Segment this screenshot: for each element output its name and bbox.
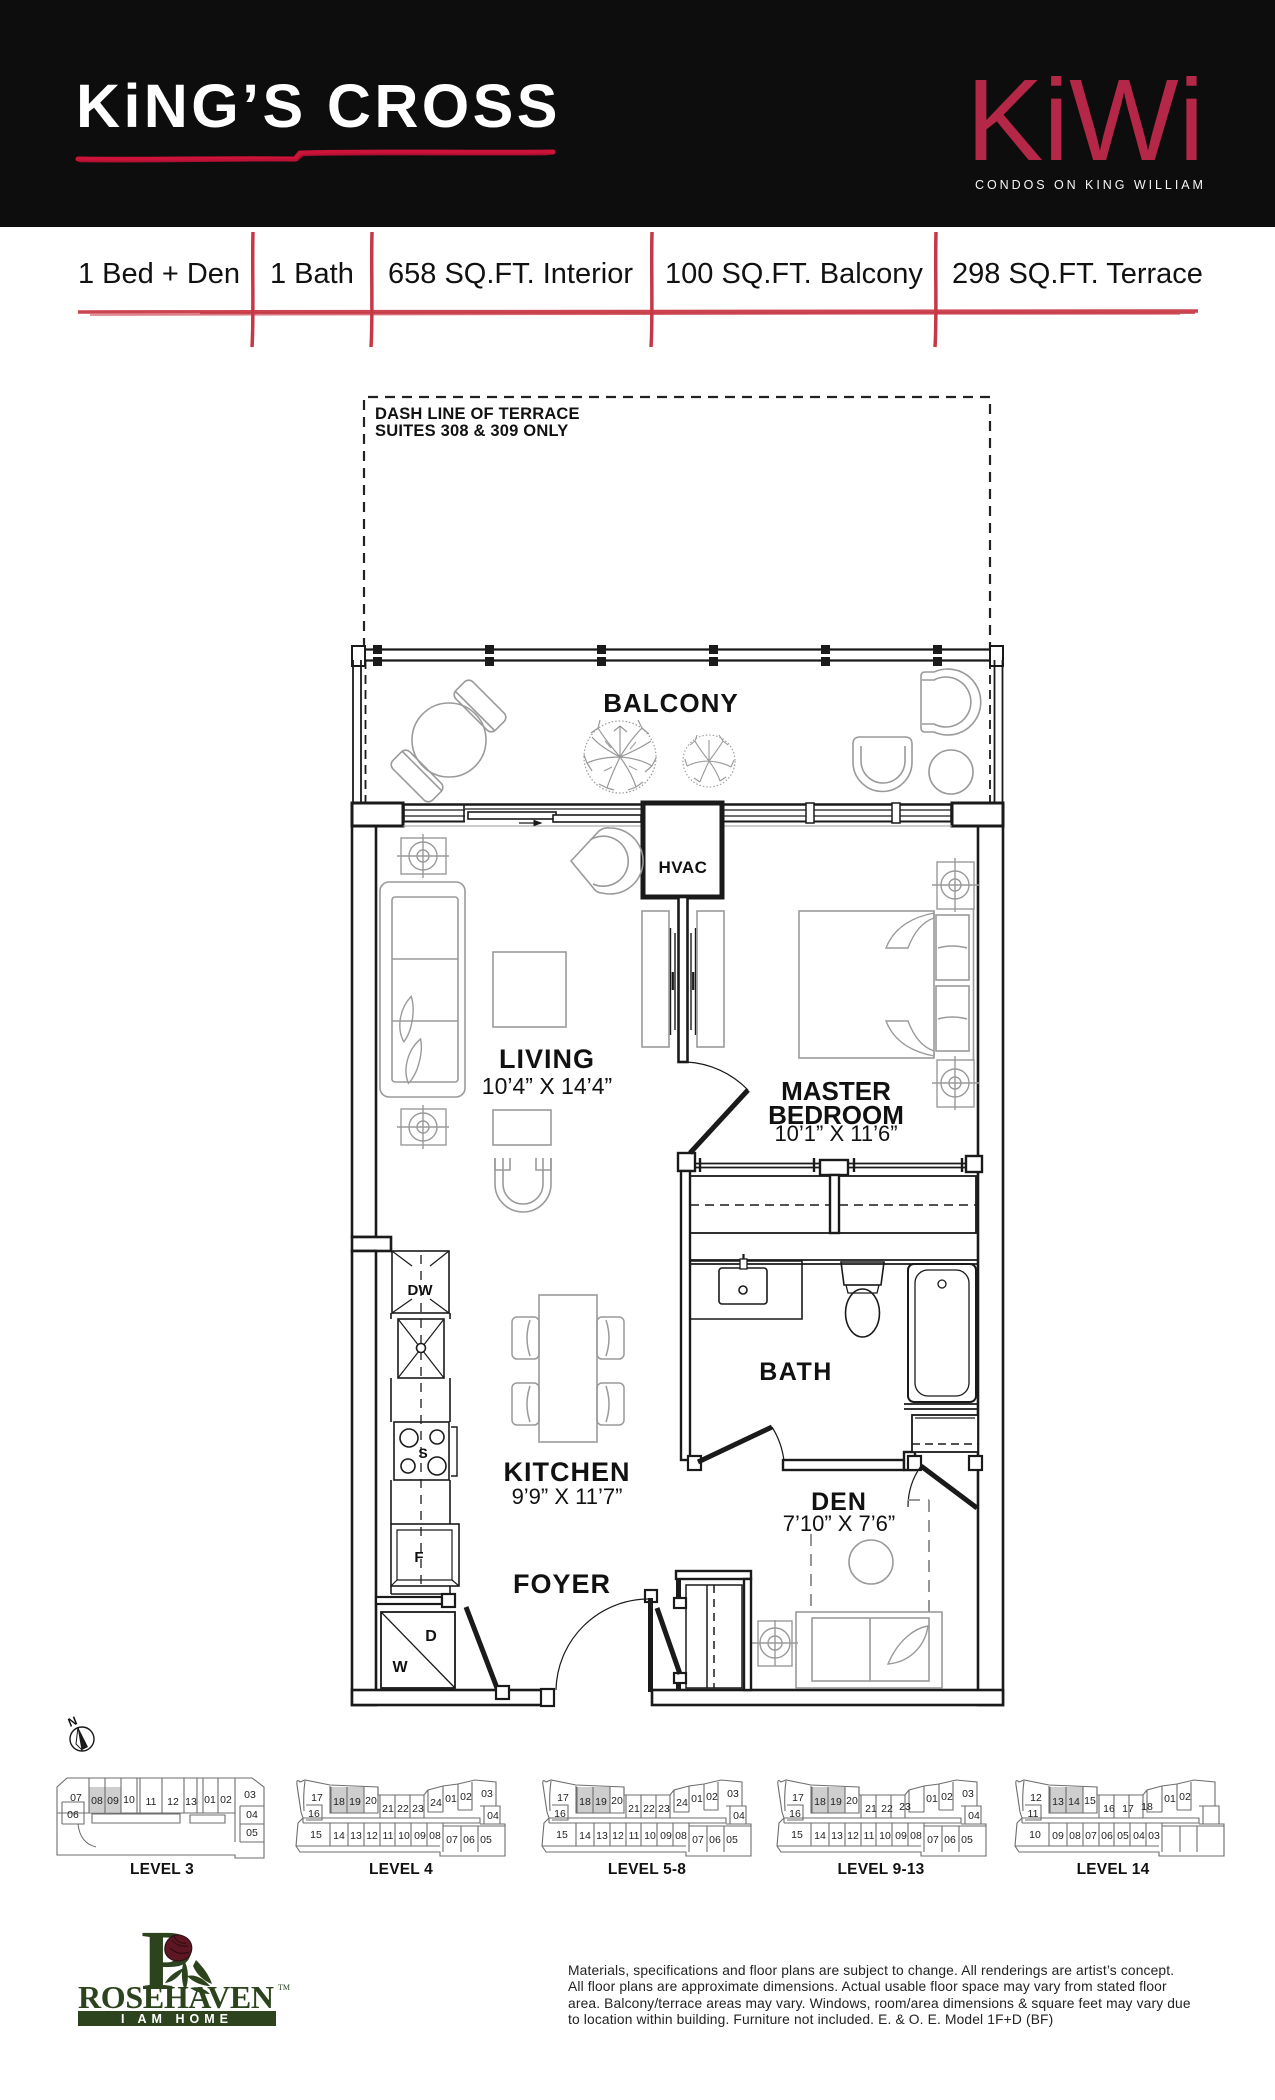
svg-text:I AM HOME: I AM HOME (121, 2012, 233, 2026)
svg-text:04: 04 (246, 1809, 258, 1821)
svg-text:14: 14 (579, 1830, 591, 1842)
svg-text:01: 01 (1164, 1793, 1176, 1805)
svg-text:KITCHEN: KITCHEN (504, 1457, 631, 1487)
svg-text:13: 13 (1052, 1796, 1064, 1808)
svg-text:W: W (392, 1659, 408, 1676)
svg-text:05: 05 (726, 1834, 738, 1846)
svg-text:7’10” X 7’6”: 7’10” X 7’6” (783, 1511, 896, 1536)
svg-text:22: 22 (643, 1803, 655, 1815)
svg-text:14: 14 (333, 1830, 345, 1842)
svg-text:16: 16 (308, 1808, 320, 1820)
svg-text:06: 06 (1101, 1830, 1113, 1842)
svg-text:05: 05 (961, 1834, 973, 1846)
svg-text:23: 23 (412, 1803, 424, 1815)
svg-text:BALCONY: BALCONY (603, 688, 739, 718)
svg-text:17: 17 (792, 1792, 804, 1804)
svg-text:13: 13 (831, 1830, 843, 1842)
svg-text:09: 09 (660, 1830, 672, 1842)
svg-text:17: 17 (557, 1792, 569, 1804)
svg-text:17: 17 (311, 1792, 323, 1804)
svg-text:LIVING: LIVING (499, 1044, 595, 1074)
svg-text:01: 01 (691, 1793, 703, 1805)
svg-text:19: 19 (830, 1796, 842, 1808)
svg-text:09: 09 (414, 1830, 426, 1842)
svg-text:BATH: BATH (759, 1358, 833, 1386)
svg-text:03: 03 (244, 1789, 256, 1801)
svg-text:09: 09 (895, 1830, 907, 1842)
svg-text:10: 10 (398, 1830, 410, 1842)
svg-text:21: 21 (628, 1803, 640, 1815)
svg-text:03: 03 (481, 1788, 493, 1800)
svg-text:10: 10 (879, 1830, 891, 1842)
svg-text:11: 11 (1028, 1808, 1039, 1820)
svg-text:04: 04 (487, 1810, 499, 1822)
svg-text:12: 12 (366, 1830, 378, 1842)
svg-text:06: 06 (944, 1834, 956, 1846)
svg-text:19: 19 (595, 1796, 607, 1808)
svg-text:21: 21 (865, 1803, 877, 1815)
svg-text:10: 10 (1029, 1829, 1041, 1841)
svg-text:12: 12 (847, 1830, 859, 1842)
svg-text:08: 08 (1069, 1830, 1081, 1842)
svg-text:03: 03 (727, 1788, 739, 1800)
svg-text:12: 12 (612, 1830, 624, 1842)
svg-text:22: 22 (397, 1803, 409, 1815)
svg-text:05: 05 (246, 1827, 258, 1839)
svg-text:09: 09 (1052, 1830, 1064, 1842)
svg-text:23: 23 (658, 1803, 670, 1815)
svg-text:LEVEL 4: LEVEL 4 (369, 1861, 433, 1878)
svg-text:20: 20 (846, 1795, 858, 1807)
svg-text:14: 14 (1068, 1796, 1080, 1808)
svg-text:11: 11 (146, 1796, 157, 1808)
svg-text:15: 15 (556, 1829, 568, 1841)
svg-text:FOYER: FOYER (513, 1569, 611, 1599)
svg-text:06: 06 (67, 1809, 79, 1821)
svg-text:01: 01 (204, 1794, 216, 1806)
svg-text:19: 19 (349, 1796, 361, 1808)
svg-text:F: F (414, 1549, 423, 1566)
svg-text:07: 07 (927, 1834, 939, 1846)
svg-text:02: 02 (220, 1794, 232, 1806)
svg-text:HVAC: HVAC (659, 858, 708, 877)
svg-text:16: 16 (789, 1808, 801, 1820)
svg-text:08: 08 (910, 1830, 922, 1842)
svg-text:LEVEL 14: LEVEL 14 (1077, 1861, 1150, 1878)
svg-text:01: 01 (445, 1793, 457, 1805)
svg-text:LEVEL 5-8: LEVEL 5-8 (608, 1861, 686, 1878)
svg-text:13: 13 (185, 1796, 197, 1808)
svg-text:15: 15 (310, 1829, 322, 1841)
svg-text:SUITES 308 & 309 ONLY: SUITES 308 & 309 ONLY (375, 422, 568, 440)
svg-text:08: 08 (91, 1795, 103, 1807)
svg-text:12: 12 (167, 1796, 179, 1808)
svg-text:07: 07 (70, 1792, 82, 1804)
svg-text:21: 21 (382, 1803, 394, 1815)
svg-text:LEVEL 3: LEVEL 3 (130, 1861, 194, 1878)
svg-text:14: 14 (814, 1830, 826, 1842)
svg-text:ROSEHAVEN: ROSEHAVEN (78, 1979, 274, 2015)
svg-text:18: 18 (1141, 1801, 1153, 1813)
svg-text:02: 02 (706, 1791, 718, 1803)
svg-text:09: 09 (107, 1795, 119, 1807)
svg-text:DW: DW (408, 1282, 434, 1299)
svg-text:11: 11 (629, 1830, 640, 1842)
svg-text:11: 11 (864, 1830, 875, 1842)
svg-text:04: 04 (968, 1810, 980, 1822)
svg-text:17: 17 (1122, 1803, 1134, 1815)
svg-text:9’9” X 11’7”: 9’9” X 11’7” (512, 1484, 623, 1509)
svg-text:07: 07 (446, 1834, 458, 1846)
svg-text:DASH LINE OF TERRACE: DASH LINE OF TERRACE (375, 405, 580, 423)
svg-text:01: 01 (926, 1793, 938, 1805)
svg-text:23: 23 (899, 1801, 911, 1813)
svg-text:08: 08 (429, 1830, 441, 1842)
svg-text:04: 04 (733, 1810, 745, 1822)
svg-text:20: 20 (365, 1795, 377, 1807)
svg-text:TM: TM (278, 1983, 290, 1992)
svg-text:02: 02 (460, 1791, 472, 1803)
svg-text:15: 15 (1084, 1795, 1096, 1807)
svg-text:10’4” X 14’4”: 10’4” X 14’4” (482, 1073, 612, 1099)
svg-text:10: 10 (644, 1830, 656, 1842)
svg-text:LEVEL 9-13: LEVEL 9-13 (837, 1861, 924, 1878)
svg-text:18: 18 (579, 1796, 591, 1808)
svg-text:18: 18 (814, 1796, 826, 1808)
svg-text:03: 03 (1148, 1830, 1160, 1842)
svg-text:S: S (418, 1445, 427, 1461)
svg-text:18: 18 (333, 1796, 345, 1808)
svg-text:02: 02 (1179, 1791, 1191, 1803)
svg-text:05: 05 (1117, 1830, 1129, 1842)
svg-text:05: 05 (480, 1834, 492, 1846)
svg-text:06: 06 (709, 1834, 721, 1846)
svg-text:02: 02 (941, 1791, 953, 1803)
svg-text:13: 13 (596, 1830, 608, 1842)
svg-text:10’1” X 11’6”: 10’1” X 11’6” (774, 1121, 897, 1146)
svg-text:16: 16 (1103, 1803, 1115, 1815)
svg-text:06: 06 (463, 1834, 475, 1846)
svg-text:11: 11 (383, 1830, 394, 1842)
svg-text:07: 07 (1085, 1830, 1097, 1842)
svg-text:16: 16 (554, 1808, 566, 1820)
svg-text:20: 20 (611, 1795, 623, 1807)
svg-text:24: 24 (676, 1797, 688, 1809)
svg-text:10: 10 (123, 1794, 135, 1806)
svg-text:24: 24 (430, 1797, 442, 1809)
svg-text:03: 03 (962, 1788, 974, 1800)
svg-text:15: 15 (791, 1829, 803, 1841)
svg-text:04: 04 (1133, 1830, 1145, 1842)
svg-text:22: 22 (881, 1803, 893, 1815)
svg-text:12: 12 (1030, 1792, 1042, 1804)
svg-text:13: 13 (350, 1830, 362, 1842)
svg-text:08: 08 (675, 1830, 687, 1842)
svg-text:07: 07 (692, 1834, 704, 1846)
svg-text:D: D (425, 1628, 437, 1645)
